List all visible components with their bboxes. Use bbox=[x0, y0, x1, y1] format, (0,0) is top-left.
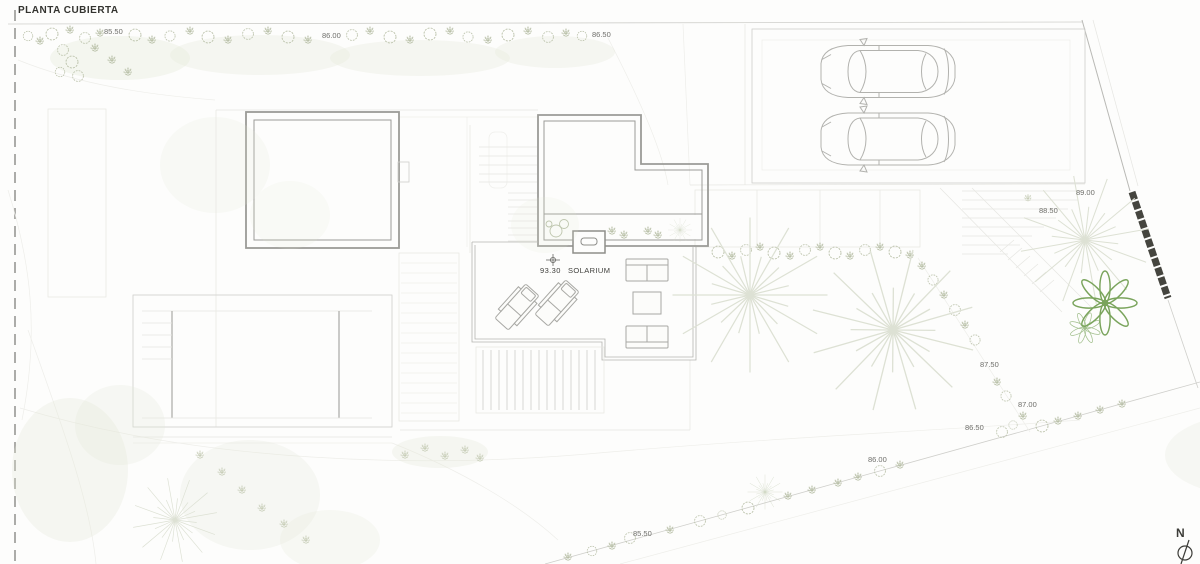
car-icon bbox=[821, 39, 955, 105]
bush-icon bbox=[860, 245, 871, 256]
roof-plan-drawing: 93.30 SOLARIUM bbox=[0, 0, 1200, 564]
flower-icon bbox=[446, 27, 455, 36]
parking-area bbox=[752, 29, 1085, 183]
flower-icon bbox=[1024, 194, 1032, 202]
bush-icon bbox=[46, 28, 58, 40]
car-2 bbox=[821, 106, 955, 172]
driveway-edge bbox=[608, 38, 668, 185]
lower-terrace bbox=[133, 295, 392, 443]
flower-icon bbox=[786, 252, 795, 261]
louver-deck bbox=[399, 253, 459, 421]
elevation-label: 89.00 bbox=[1076, 188, 1095, 197]
flower-icon bbox=[524, 27, 533, 36]
bush-icon bbox=[997, 427, 1008, 438]
boundary-east-wall-inner bbox=[1093, 20, 1138, 186]
bush-icon bbox=[1001, 391, 1011, 401]
elevation-label: 87.00 bbox=[1018, 400, 1037, 409]
flower-icon bbox=[666, 526, 675, 535]
bush-icon bbox=[347, 30, 358, 41]
level-marker-icon bbox=[546, 254, 560, 266]
parking-inner-outline bbox=[762, 40, 1070, 170]
bush-icon bbox=[502, 29, 514, 41]
flower-icon bbox=[940, 291, 949, 300]
solarium-label: SOLARIUM bbox=[568, 266, 610, 275]
flower-icon bbox=[564, 553, 573, 562]
elevation-label: 85.50 bbox=[633, 529, 652, 538]
plant-icon bbox=[1064, 307, 1105, 348]
elevation-label: 86.50 bbox=[592, 30, 611, 39]
pergola bbox=[476, 347, 604, 413]
elevation-label: 86.00 bbox=[868, 455, 887, 464]
contour-line bbox=[8, 190, 31, 420]
terrace-upper-edge bbox=[690, 184, 1085, 185]
elevation-label: 86.50 bbox=[965, 423, 984, 432]
palm-tree-icon bbox=[793, 230, 993, 430]
bush-icon bbox=[800, 245, 811, 256]
driveway-edge bbox=[683, 24, 690, 185]
car-1 bbox=[821, 39, 955, 105]
solarium-deck: 93.30 SOLARIUM bbox=[472, 242, 696, 360]
sofa-bottom bbox=[626, 326, 668, 348]
bush-icon bbox=[889, 246, 901, 258]
retaining-wall bbox=[1132, 192, 1168, 298]
flower-icon bbox=[264, 27, 273, 36]
terrace-steps bbox=[142, 323, 172, 359]
plan-svg: 93.30 SOLARIUM bbox=[0, 0, 1200, 564]
chimney bbox=[573, 231, 605, 253]
bush-icon bbox=[424, 28, 436, 40]
north-arrow: N bbox=[1176, 526, 1192, 564]
boundary-east-wall bbox=[1082, 20, 1130, 191]
flower-icon bbox=[961, 321, 970, 330]
boundary-east-lower bbox=[1168, 300, 1198, 388]
flower-icon bbox=[784, 492, 793, 501]
plant-icon bbox=[1073, 271, 1137, 335]
lounger-icon bbox=[492, 282, 541, 333]
sofa-top bbox=[626, 259, 668, 281]
bush-icon bbox=[23, 31, 33, 41]
bush-icon bbox=[829, 247, 841, 259]
elevation-label: 88.50 bbox=[1039, 206, 1058, 215]
bush-icon bbox=[463, 32, 473, 42]
table bbox=[633, 292, 661, 314]
hedge-east bbox=[712, 243, 1028, 438]
flower-icon bbox=[366, 27, 375, 36]
compass-icon bbox=[1178, 540, 1192, 564]
solarium-level: 93.30 bbox=[540, 266, 561, 275]
flower-icon bbox=[186, 27, 195, 36]
elevation-label: 87.50 bbox=[980, 360, 999, 369]
flower-icon bbox=[484, 36, 493, 45]
contour-line bbox=[20, 408, 1080, 461]
car-icon bbox=[821, 106, 955, 172]
bush-icon bbox=[970, 335, 980, 345]
elevation-label: 86.00 bbox=[322, 31, 341, 40]
flower-icon bbox=[608, 542, 617, 551]
flower-icon bbox=[36, 37, 45, 46]
garden-steps bbox=[940, 188, 1092, 312]
bush-icon bbox=[165, 31, 175, 41]
lounger-icon bbox=[532, 278, 581, 329]
boundary-north bbox=[8, 22, 1082, 24]
north-label: N bbox=[1176, 526, 1185, 540]
plan-title: PLANTA CUBIERTA bbox=[18, 5, 119, 16]
sun-lounger-2 bbox=[532, 278, 581, 329]
flower-icon bbox=[66, 26, 75, 35]
bush-icon bbox=[928, 275, 938, 285]
sun-lounger-1 bbox=[492, 282, 541, 333]
flower-icon bbox=[1054, 417, 1063, 426]
flower-icon bbox=[1019, 412, 1028, 421]
flower-icon bbox=[846, 252, 855, 261]
elevation-label: 85.50 bbox=[104, 27, 123, 36]
